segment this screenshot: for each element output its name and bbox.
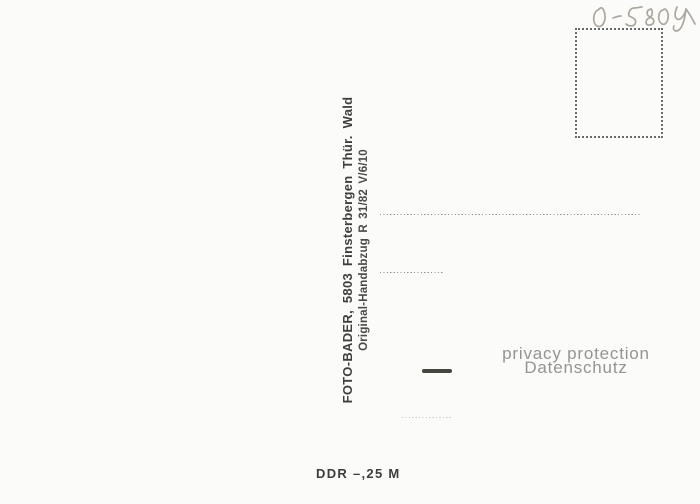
stamp-box	[575, 28, 663, 138]
address-line-3	[402, 417, 452, 419]
publisher-line1: FOTO-BADER, 5803 Finsterbergen Thür. Wal…	[340, 97, 355, 404]
divider-dash	[422, 369, 452, 373]
address-line-1	[380, 214, 640, 216]
publisher-imprint: FOTO-BADER, 5803 Finsterbergen Thür. Wal…	[337, 100, 373, 400]
privacy-watermark: privacy protection Datenschutz	[476, 347, 676, 374]
publisher-line2: Original-Handabzug R 31/82 V/6/10	[358, 149, 370, 351]
postcard-back: 0-5804 FOTO-BADER, 5803 Finsterbergen Th…	[0, 0, 700, 504]
price-label: DDR –,25 M	[316, 466, 401, 481]
address-line-2	[380, 272, 444, 274]
